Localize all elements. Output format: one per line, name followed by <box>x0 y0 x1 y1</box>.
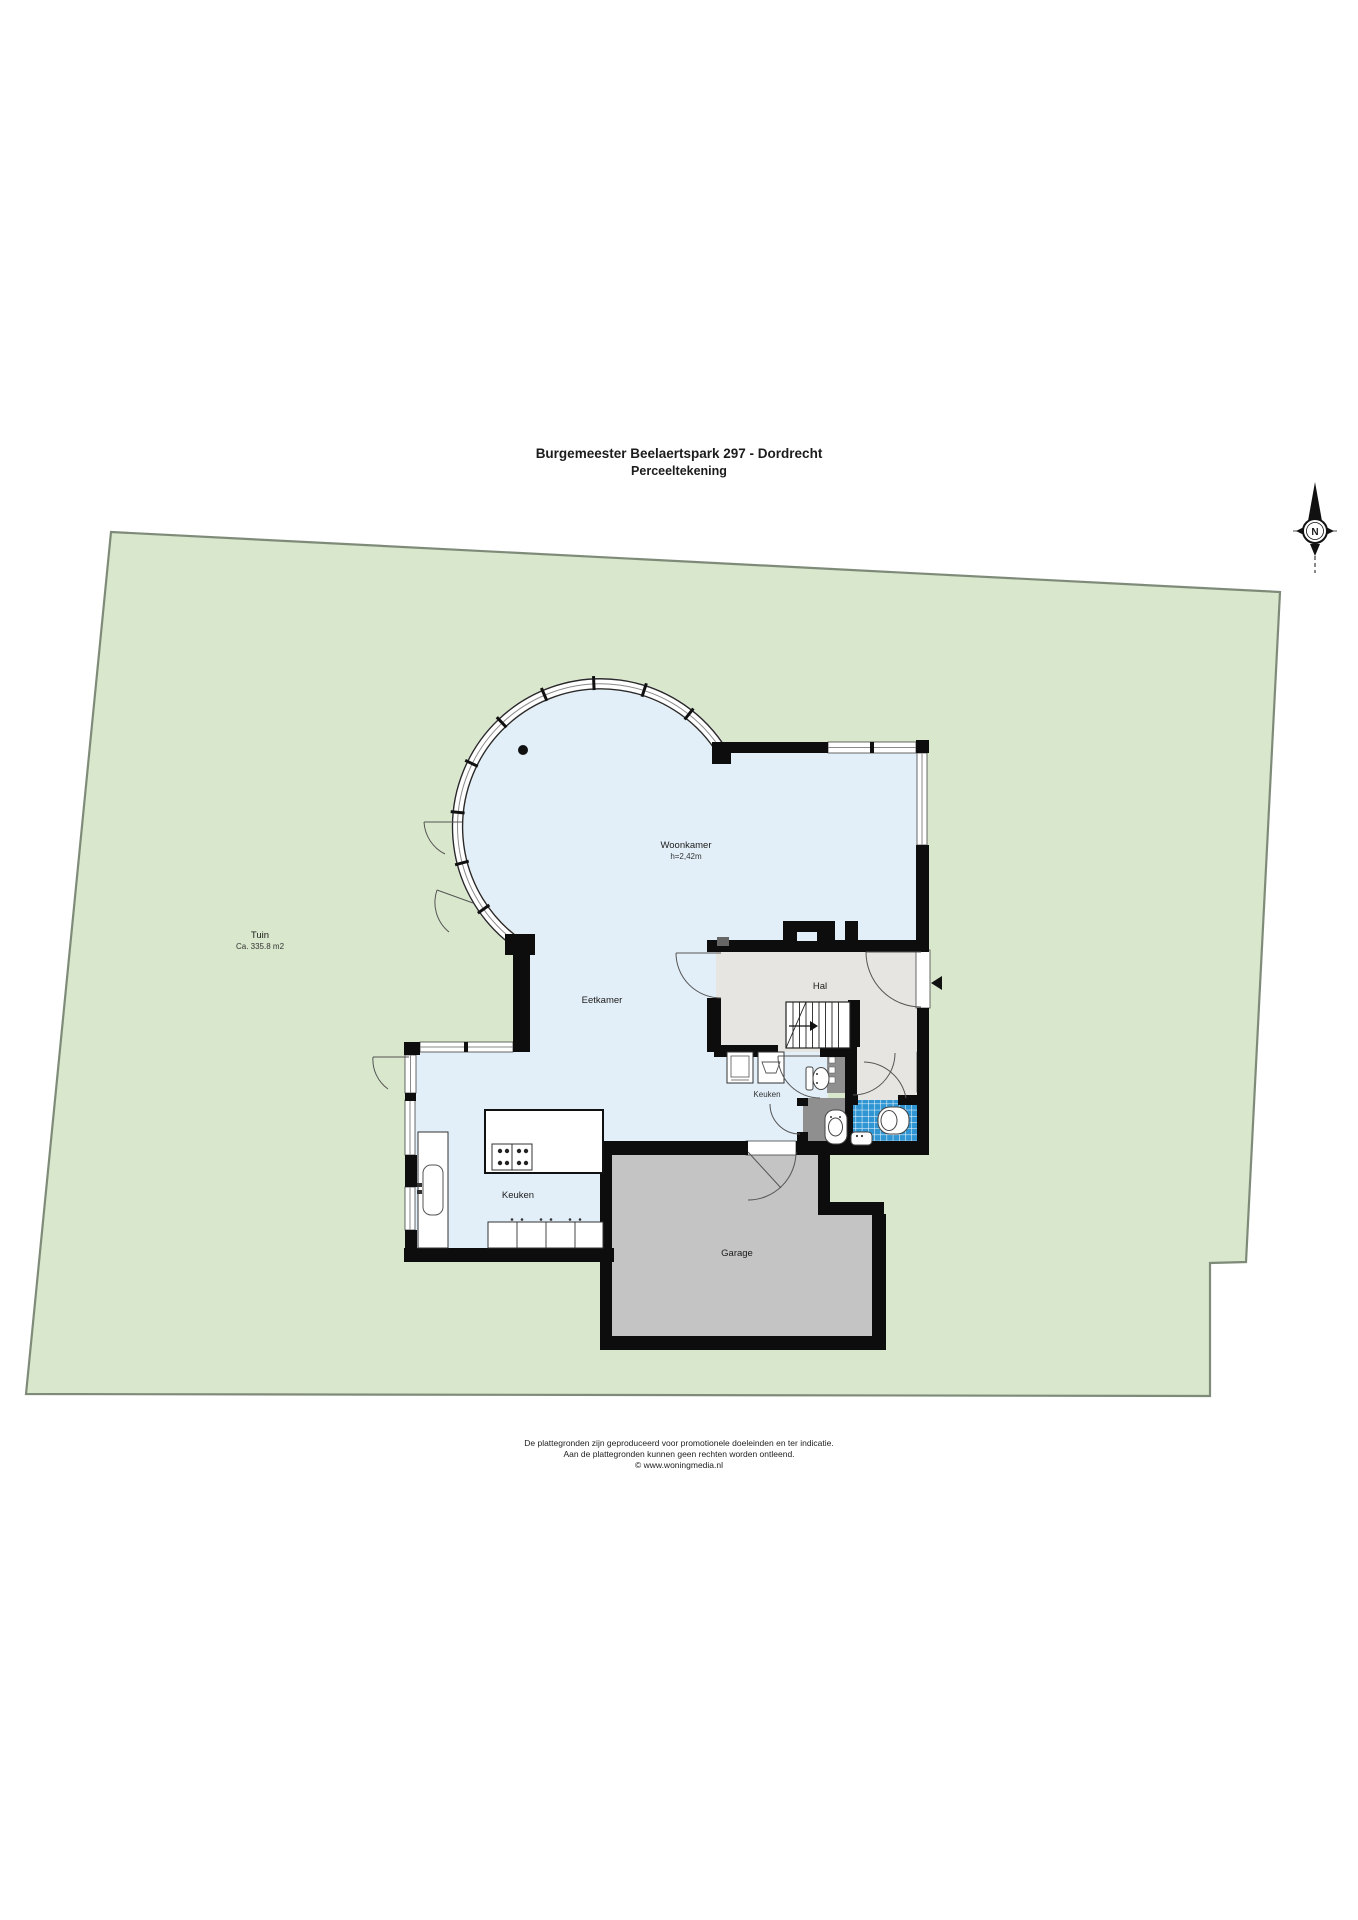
kitchen-island <box>485 1110 603 1173</box>
north-compass-icon: N <box>1293 482 1337 573</box>
label-tuin-area: Ca. 335.8 m2 <box>236 942 285 951</box>
staircase <box>786 1002 850 1048</box>
page-title: Burgemeester Beelaertspark 297 - Dordrec… <box>536 446 823 461</box>
toilet-icon-wc <box>825 1110 847 1144</box>
footer-disclaimer-1: De plattegronden zijn geproduceerd voor … <box>524 1438 834 1448</box>
page-subtitle: Perceeltekening <box>631 464 727 478</box>
label-eetkamer: Eetkamer <box>582 995 623 1006</box>
label-bijkeuken: Keuken <box>753 1090 780 1099</box>
footer-copyright: © www.woningmedia.nl <box>635 1460 723 1470</box>
column-dot <box>518 745 528 755</box>
label-tuin: Tuin <box>251 930 269 941</box>
toilet-icon-scullery <box>806 1067 829 1090</box>
label-hal: Hal <box>813 981 827 992</box>
compass-north-label: N <box>1311 527 1318 538</box>
label-woonkamer-height: h=2,42m <box>670 852 702 861</box>
sink-icon <box>423 1165 443 1215</box>
label-woonkamer: Woonkamer <box>660 840 711 851</box>
label-garage: Garage <box>721 1248 753 1259</box>
label-keuken: Keuken <box>502 1190 534 1201</box>
floorplan-canvas: Burgemeester Beelaertspark 297 - Dordrec… <box>0 0 1358 1920</box>
cooktop-icon <box>492 1144 532 1170</box>
washbasin-icon <box>851 1132 872 1145</box>
footer-disclaimer-2: Aan de plattegronden kunnen geen rechten… <box>563 1449 794 1459</box>
toilet-icon-bathroom <box>878 1107 909 1134</box>
duct-shelves <box>829 1057 835 1083</box>
kitchen-counter-left <box>417 1132 448 1248</box>
floorplan-page: Burgemeester Beelaertspark 297 - Dordrec… <box>0 0 1358 1920</box>
kitchen-counter-bottom <box>488 1218 603 1248</box>
